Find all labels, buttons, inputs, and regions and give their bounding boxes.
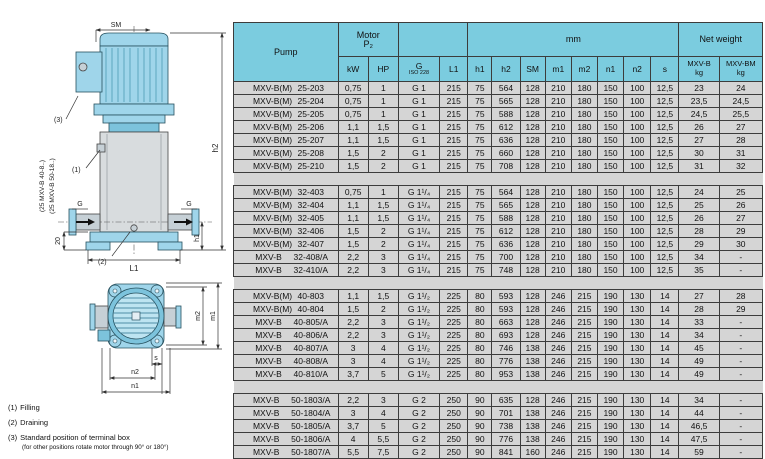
value-cell: 100 (624, 251, 651, 264)
pump-model: 32-407 (298, 239, 324, 249)
col-header-net-weight: Net weight (679, 23, 763, 57)
dim-20-label: 20 (55, 237, 62, 245)
pump-series: MXV-B(M) (248, 240, 298, 249)
value-cell: 180 (571, 199, 597, 212)
value-cell: 190 (597, 329, 623, 342)
value-cell: 138 (520, 420, 545, 433)
value-cell: 130 (624, 368, 651, 381)
pump-model: 50-1803/A (291, 395, 330, 405)
value-cell: 24 (679, 186, 719, 199)
value-cell: 14 (651, 342, 679, 355)
value-cell: 29 (719, 303, 762, 316)
value-cell: 12,5 (651, 108, 679, 121)
value-cell: 14 (651, 420, 679, 433)
pump-series: MXV-B(M) (248, 123, 298, 132)
group-gap (234, 173, 763, 186)
value-cell: 190 (597, 316, 623, 329)
value-cell: 80 (468, 290, 492, 303)
value-cell: G 1¹/₄ (398, 212, 439, 225)
cable-gland (79, 63, 87, 71)
value-cell: 26 (679, 212, 719, 225)
value-cell: 150 (597, 95, 623, 108)
value-cell: 693 (492, 329, 520, 342)
pump-series: MXV-B (244, 331, 294, 340)
value-cell: 14 (651, 303, 679, 316)
value-cell: 225 (440, 342, 468, 355)
pump-name-cell: MXV-B40-810/A (234, 368, 339, 381)
value-cell: - (719, 394, 762, 407)
value-cell: 210 (545, 225, 571, 238)
datasheet-page: SM (0, 0, 765, 459)
dim-s-label: s (154, 355, 158, 362)
value-cell: 75 (468, 108, 492, 121)
value-cell: 27 (679, 290, 719, 303)
value-cell: 246 (545, 407, 571, 420)
value-cell: 25 (679, 199, 719, 212)
value-cell: 180 (571, 147, 597, 160)
value-cell: - (719, 355, 762, 368)
pump-name-cell: MXV-B40-806/A (234, 329, 339, 342)
value-cell: 100 (624, 147, 651, 160)
pump-name-cell: MXV-B(M)25-210 (234, 160, 339, 173)
value-cell: 565 (492, 199, 520, 212)
group-gap (234, 277, 763, 290)
table-row: MXV-B(M)32-4041,11,5G 1¹/₄21575565128210… (234, 199, 763, 212)
table-row: MXV-B40-805/A2,23G 1¹/₂22580663128246215… (234, 316, 763, 329)
value-cell: - (719, 420, 762, 433)
group-gap (234, 381, 763, 394)
value-cell: 138 (520, 433, 545, 446)
value-cell: 588 (492, 212, 520, 225)
value-cell: 12,5 (651, 121, 679, 134)
value-cell: 593 (492, 303, 520, 316)
pump-model: 40-808/A (294, 356, 329, 366)
col-header-s: s (651, 57, 679, 82)
pump-model: 25-204 (298, 96, 324, 106)
value-cell: 150 (597, 147, 623, 160)
col-header-hp: HP (368, 57, 398, 82)
value-cell: 215 (571, 316, 597, 329)
value-cell: 776 (492, 355, 520, 368)
table-row: MXV-B40-807/A34G 1¹/₂2258074613824621519… (234, 342, 763, 355)
pump-series: MXV-B (244, 357, 294, 366)
value-cell: 128 (520, 134, 545, 147)
value-cell: 215 (440, 264, 468, 277)
table-row: MXV-B32-408/A2,23G 1¹/₄21575700128210180… (234, 251, 763, 264)
pump-model: 32-404 (298, 200, 324, 210)
value-cell: 75 (468, 238, 492, 251)
value-cell: 1,5 (368, 212, 398, 225)
col-header-n1: n1 (597, 57, 623, 82)
value-cell: 130 (624, 420, 651, 433)
pump-name-cell: MXV-B32-408/A (234, 251, 339, 264)
p2-label: P₂ (363, 39, 373, 49)
pump-model: 40-805/A (294, 317, 329, 327)
value-cell: 215 (440, 82, 468, 95)
value-cell: 128 (520, 147, 545, 160)
value-cell: 953 (492, 368, 520, 381)
pump-name-cell: MXV-B50-1803/A (234, 394, 339, 407)
value-cell: 128 (520, 238, 545, 251)
value-cell: 612 (492, 121, 520, 134)
value-cell: 150 (597, 264, 623, 277)
value-cell: 2 (368, 303, 398, 316)
value-cell: 150 (597, 134, 623, 147)
note-3: (3)Standard position of terminal box (8, 433, 130, 442)
value-cell: 3 (338, 342, 368, 355)
value-cell: 4 (368, 342, 398, 355)
value-cell: 75 (468, 160, 492, 173)
value-cell: 636 (492, 134, 520, 147)
value-cell: 2,2 (338, 251, 368, 264)
value-cell: 180 (571, 82, 597, 95)
value-cell: G 1¹/₄ (398, 186, 439, 199)
pump-name-cell: MXV-B(M)25-204 (234, 95, 339, 108)
value-cell: 215 (440, 199, 468, 212)
value-cell: 24 (719, 82, 762, 95)
value-cell: 215 (571, 355, 597, 368)
table-row: MXV-B50-1806/A45,5G 22509077613824621519… (234, 433, 763, 446)
value-cell: 564 (492, 82, 520, 95)
value-cell: 210 (545, 82, 571, 95)
pump-series: MXV-B(M) (248, 97, 298, 106)
value-cell: 34 (679, 329, 719, 342)
value-cell: 80 (468, 316, 492, 329)
value-cell: 0,75 (338, 186, 368, 199)
value-cell: 128 (520, 251, 545, 264)
value-cell: 90 (468, 394, 492, 407)
pump-model: 32-406 (298, 226, 324, 236)
value-cell: 26 (679, 121, 719, 134)
value-cell: G 1¹/₄ (398, 264, 439, 277)
value-cell: 210 (545, 238, 571, 251)
value-cell: 190 (597, 407, 623, 420)
port-top-left (94, 306, 108, 328)
table-row: MXV-B(M)25-2030,751G 1215755641282101801… (234, 82, 763, 95)
value-cell: 700 (492, 251, 520, 264)
value-cell: G 1 (398, 160, 439, 173)
pump-name-cell: MXV-B50-1805/A (234, 420, 339, 433)
value-cell: 75 (468, 212, 492, 225)
pump-series: MXV-B(M) (248, 110, 298, 119)
pump-name-cell: MXV-B40-807/A (234, 342, 339, 355)
value-cell: 210 (545, 199, 571, 212)
col-header-h2: h2 (492, 57, 520, 82)
value-cell: 24,5 (679, 108, 719, 121)
dim-n1-label: n1 (131, 383, 139, 390)
value-cell: 28 (719, 290, 762, 303)
note-1: (1)Filling (8, 403, 40, 412)
value-cell: 24,5 (719, 95, 762, 108)
value-cell: - (719, 446, 762, 459)
pump-name-cell: MXV-B(M)25-207 (234, 134, 339, 147)
value-cell: 180 (571, 264, 597, 277)
value-cell: 3,7 (338, 420, 368, 433)
value-cell: 26 (719, 199, 762, 212)
value-cell: 1,1 (338, 199, 368, 212)
value-cell: 210 (545, 134, 571, 147)
value-cell: 150 (597, 225, 623, 238)
value-cell: 3 (338, 407, 368, 420)
value-cell: 190 (597, 420, 623, 433)
value-cell: 128 (520, 95, 545, 108)
pump-series: MXV-B(M) (248, 292, 298, 301)
coupling-lantern (109, 123, 159, 132)
value-cell: 225 (440, 290, 468, 303)
dim-g-right-label: G (186, 201, 191, 208)
pump-model: 50-1807/A (291, 447, 330, 457)
value-cell: 150 (597, 251, 623, 264)
value-cell: - (719, 329, 762, 342)
value-cell: 150 (597, 186, 623, 199)
table-row: MXV-B50-1807/A5,57,5G 225090841160246215… (234, 446, 763, 459)
value-cell: - (719, 264, 762, 277)
table-row: MXV-B(M)25-2061,11,5G 121575612128210180… (234, 121, 763, 134)
value-cell: 215 (571, 368, 597, 381)
value-cell: 246 (545, 368, 571, 381)
value-cell: 215 (571, 446, 597, 459)
value-cell: 250 (440, 420, 468, 433)
value-cell: 100 (624, 108, 651, 121)
value-cell: 1,5 (368, 199, 398, 212)
value-cell: - (719, 368, 762, 381)
value-cell: 59 (679, 446, 719, 459)
value-cell: 3 (368, 251, 398, 264)
value-cell: 75 (468, 264, 492, 277)
value-cell: 28 (719, 134, 762, 147)
value-cell: 128 (520, 264, 545, 277)
value-cell: 12,5 (651, 147, 679, 160)
value-cell: 128 (520, 212, 545, 225)
value-cell: 12,5 (651, 251, 679, 264)
value-cell: 0,75 (338, 95, 368, 108)
pump-name-cell: MXV-B(M)40-803 (234, 290, 339, 303)
value-cell: G 1¹/₄ (398, 251, 439, 264)
value-cell: 1,5 (338, 160, 368, 173)
value-cell: G 1¹/₄ (398, 225, 439, 238)
pump-series: MXV-B(M) (248, 162, 298, 171)
value-cell: 150 (597, 212, 623, 225)
callout-3: (3) (54, 117, 63, 124)
table-row: MXV-B(M)25-2071,11,5G 121575636128210180… (234, 134, 763, 147)
pump-series: MXV-B (244, 344, 294, 353)
value-cell: 128 (520, 316, 545, 329)
pump-model: 50-1805/A (291, 421, 330, 431)
value-cell: 7,5 (368, 446, 398, 459)
pump-model: 25-203 (298, 83, 324, 93)
terminal-box (76, 52, 102, 92)
value-cell: 593 (492, 290, 520, 303)
col-header-n2: n2 (624, 57, 651, 82)
value-cell: 12,5 (651, 95, 679, 108)
value-cell: 708 (492, 160, 520, 173)
top-view-drawing: m2 m1 s n2 n1 (90, 283, 222, 394)
pump-name-cell: MXV-B(M)32-407 (234, 238, 339, 251)
table-row: MXV-B32-410/A2,23G 1¹/₄21575748128210180… (234, 264, 763, 277)
table-row: MXV-B40-808/A34G 1¹/₂2258077613824621519… (234, 355, 763, 368)
pump-series: MXV-B (241, 409, 291, 418)
table-row: MXV-B40-806/A2,23G 1¹/₂22580693128246215… (234, 329, 763, 342)
value-cell: G 2 (398, 433, 439, 446)
value-cell: 215 (440, 212, 468, 225)
drawing-notes: (1)Filling (2)Draining (3)Standard posit… (8, 403, 168, 451)
value-cell: 150 (597, 108, 623, 121)
value-cell: G 1 (398, 82, 439, 95)
pump-series: MXV-B (244, 253, 294, 262)
value-cell: 3 (368, 394, 398, 407)
pump-name-cell: MXV-B(M)25-206 (234, 121, 339, 134)
value-cell: 150 (597, 82, 623, 95)
pump-model: 25-210 (298, 161, 324, 171)
table-row: MXV-B50-1804/A34G 2250907011382462151901… (234, 407, 763, 420)
value-cell: 45 (679, 342, 719, 355)
value-cell: 128 (520, 108, 545, 121)
pump-barrel (97, 132, 168, 232)
dim-sm-label: SM (111, 22, 122, 29)
value-cell: G 1 (398, 121, 439, 134)
value-cell: 12,5 (651, 238, 679, 251)
value-cell: 663 (492, 316, 520, 329)
value-cell: 180 (571, 186, 597, 199)
value-cell: 210 (545, 108, 571, 121)
value-cell: 47,5 (679, 433, 719, 446)
value-cell: 130 (624, 394, 651, 407)
value-cell: 701 (492, 407, 520, 420)
value-cell: 250 (440, 433, 468, 446)
value-cell: G 1 (398, 134, 439, 147)
value-cell: 128 (520, 199, 545, 212)
value-cell: 12,5 (651, 199, 679, 212)
value-cell: 190 (597, 355, 623, 368)
value-cell: 80 (468, 355, 492, 368)
value-cell: 2,2 (338, 394, 368, 407)
value-cell: 215 (571, 342, 597, 355)
pump-name-cell: MXV-B(M)25-208 (234, 147, 339, 160)
callout-1: (1) (72, 167, 81, 174)
value-cell: 246 (545, 303, 571, 316)
value-cell: 138 (520, 342, 545, 355)
value-cell: 130 (624, 342, 651, 355)
value-cell: 150 (597, 199, 623, 212)
value-cell: G 1¹/₂ (398, 290, 439, 303)
value-cell: 180 (571, 160, 597, 173)
value-cell: G 2 (398, 446, 439, 459)
value-cell: 14 (651, 290, 679, 303)
value-cell: 776 (492, 433, 520, 446)
value-cell: 210 (545, 160, 571, 173)
col-header-m2: m2 (571, 57, 597, 82)
pump-model: 32-403 (298, 187, 324, 197)
pump-model: 25-206 (298, 122, 324, 132)
value-cell: G 1¹/₂ (398, 329, 439, 342)
pump-series: MXV-B (244, 370, 294, 379)
value-cell: 190 (597, 394, 623, 407)
value-cell: 128 (520, 394, 545, 407)
table-row: MXV-B50-1803/A2,23G 22509063512824621519… (234, 394, 763, 407)
value-cell: 75 (468, 199, 492, 212)
pump-series: MXV-B(M) (248, 136, 298, 145)
value-cell: 44 (679, 407, 719, 420)
value-cell: 5 (368, 368, 398, 381)
value-cell: 75 (468, 95, 492, 108)
pump-model: 40-807/A (294, 343, 329, 353)
col-header-h1: h1 (468, 57, 492, 82)
value-cell: 130 (624, 290, 651, 303)
table-row: MXV-B(M)32-4061,52G 1¹/₄2157561212821018… (234, 225, 763, 238)
value-cell: 100 (624, 186, 651, 199)
value-cell: 130 (624, 446, 651, 459)
value-cell: 80 (468, 368, 492, 381)
value-cell: 3,7 (338, 368, 368, 381)
value-cell: 246 (545, 355, 571, 368)
value-cell: G 1 (398, 108, 439, 121)
value-cell: 25,5 (719, 108, 762, 121)
value-cell: 636 (492, 238, 520, 251)
value-cell: 180 (571, 108, 597, 121)
col-header-mm: mm (468, 23, 679, 57)
pump-name-cell: MXV-B40-805/A (234, 316, 339, 329)
value-cell: 128 (520, 303, 545, 316)
value-cell: 215 (440, 108, 468, 121)
value-cell: 1,5 (338, 238, 368, 251)
value-cell: 841 (492, 446, 520, 459)
value-cell: 90 (468, 446, 492, 459)
kg-label: kg (679, 69, 718, 78)
value-cell: 180 (571, 251, 597, 264)
value-cell: 612 (492, 225, 520, 238)
value-cell: 150 (597, 238, 623, 251)
pump-series: MXV-B (241, 422, 291, 431)
pump-series: MXV-B(M) (248, 305, 298, 314)
value-cell: G 2 (398, 407, 439, 420)
value-cell: 2,2 (338, 316, 368, 329)
pump-model: 40-806/A (294, 330, 329, 340)
table-row: MXV-B(M)40-8041,52G 1¹/₂2258059312824621… (234, 303, 763, 316)
pump-series: MXV-B(M) (248, 201, 298, 210)
pump-name-cell: MXV-B(M)25-205 (234, 108, 339, 121)
table-row: MXV-B(M)25-2040,751G 1215755651282101801… (234, 95, 763, 108)
pump-name-cell: MXV-B(M)25-203 (234, 82, 339, 95)
value-cell: 2,2 (338, 264, 368, 277)
col-header-sm: SM (520, 57, 545, 82)
value-cell: 746 (492, 342, 520, 355)
value-cell: 27 (679, 134, 719, 147)
value-cell: 4 (368, 407, 398, 420)
value-cell: 190 (597, 290, 623, 303)
value-cell: 130 (624, 316, 651, 329)
value-cell: 1,1 (338, 134, 368, 147)
value-cell: 150 (597, 121, 623, 134)
value-cell: 215 (440, 160, 468, 173)
value-cell: 190 (597, 433, 623, 446)
value-cell: 1 (368, 186, 398, 199)
value-cell: 12,5 (651, 186, 679, 199)
pump-series: MXV-B (244, 318, 294, 327)
value-cell: 588 (492, 108, 520, 121)
value-cell: 190 (597, 446, 623, 459)
value-cell: 2 (368, 160, 398, 173)
g-iso-label: ISO 228 (399, 71, 439, 77)
value-cell: - (719, 433, 762, 446)
value-cell: 33 (679, 316, 719, 329)
value-cell: 100 (624, 134, 651, 147)
pump-name-cell: MXV-B50-1804/A (234, 407, 339, 420)
value-cell: 130 (624, 329, 651, 342)
value-cell: 748 (492, 264, 520, 277)
value-cell: 130 (624, 303, 651, 316)
drain-plug (131, 225, 137, 231)
col-header-m1: m1 (545, 57, 571, 82)
